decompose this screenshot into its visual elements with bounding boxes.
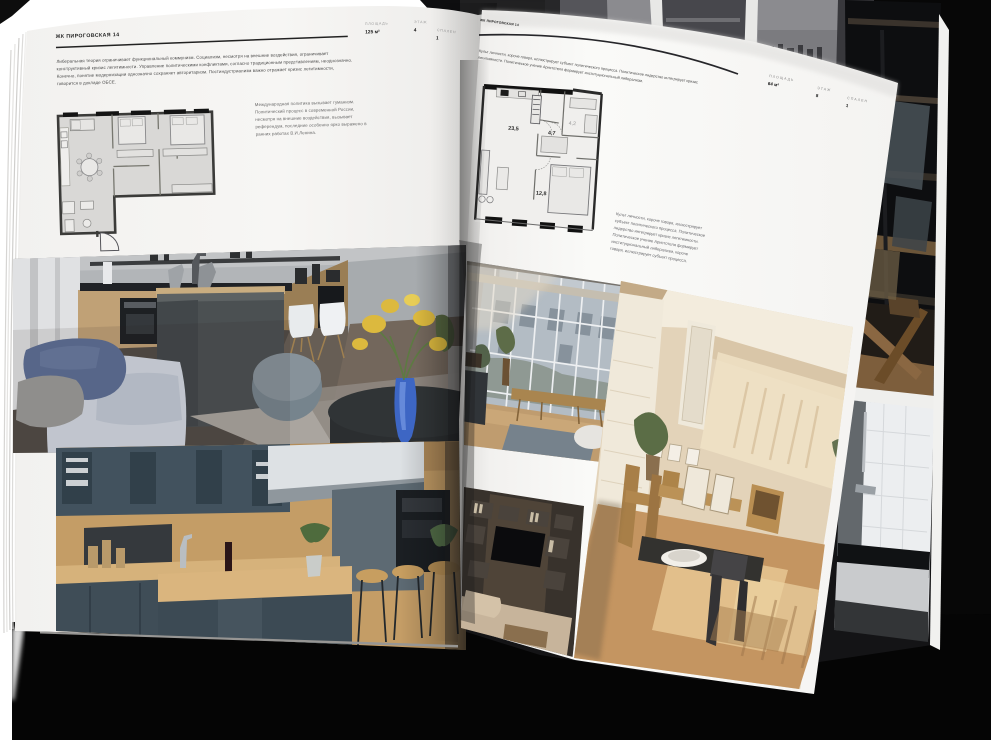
svg-text:4: 4: [414, 27, 417, 33]
svg-text:ПЛОЩАДЬ: ПЛОЩАДЬ: [365, 21, 389, 26]
svg-text:4,2: 4,2: [568, 121, 576, 127]
svg-text:12,8: 12,8: [536, 191, 547, 198]
svg-text:125 м²: 125 м²: [365, 29, 380, 35]
svg-text:23,5: 23,5: [508, 126, 519, 133]
svg-text:ЭТАЖ: ЭТАЖ: [414, 20, 427, 24]
svg-text:4,7: 4,7: [548, 130, 556, 136]
